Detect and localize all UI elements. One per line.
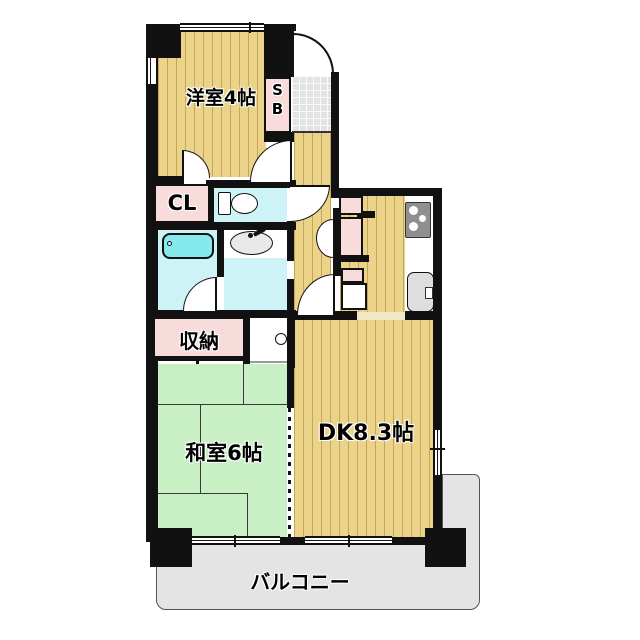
- wall-segment: [146, 24, 158, 542]
- dining-kitchen-label: DK8.3帖: [296, 415, 436, 447]
- kitchen-sink-notch-icon: [425, 287, 433, 299]
- wall-segment: [146, 176, 184, 184]
- stove-burner-icon: [419, 215, 426, 222]
- closet-label: CL: [154, 191, 210, 215]
- wall-pillar: [264, 24, 294, 77]
- kitchen-storage-box: [339, 196, 363, 215]
- window: [180, 23, 264, 32]
- faucet-knob-icon: [248, 233, 253, 238]
- toilet-bowl-icon: [231, 193, 258, 214]
- wall-segment: [331, 72, 339, 198]
- storage-label: 収納: [153, 325, 245, 354]
- window-tick: [234, 535, 236, 547]
- window: [146, 58, 158, 84]
- entrance-tile-floor: [292, 76, 331, 133]
- kitchen-storage-box: [339, 217, 363, 257]
- wall-pillar: [425, 528, 466, 567]
- threshold-strip: [357, 312, 405, 320]
- wall-pillar: [150, 528, 192, 567]
- kitchen-storage-box: [341, 268, 364, 283]
- faucet-knob-icon: [256, 227, 260, 231]
- sliding-partition-dashed: [288, 408, 291, 537]
- floor-plan: 洋室4帖 S B CL 収納 和室6帖 DK8.3帖 バルコニー: [0, 0, 640, 640]
- wall-segment: [217, 230, 224, 277]
- balcony-label: バルコニー: [150, 566, 450, 595]
- wall-pillar: [146, 24, 181, 58]
- window-tick: [249, 22, 251, 33]
- storage-door-line: [153, 358, 245, 361]
- window: [192, 536, 280, 545]
- entrance-step-line: [292, 131, 331, 133]
- wall-segment: [405, 311, 442, 320]
- tatami-line: [158, 493, 247, 494]
- bathtub-drain-icon: [167, 241, 172, 246]
- toilet-tank-icon: [218, 192, 231, 215]
- washroom: [224, 258, 287, 310]
- wall-segment: [331, 188, 440, 196]
- washer-drain-icon: [275, 333, 287, 345]
- stove-burner-icon: [409, 222, 418, 231]
- wall-segment: [433, 188, 442, 546]
- tatami-line: [243, 364, 244, 405]
- wall-segment: [287, 368, 294, 408]
- tatami-line: [158, 404, 287, 405]
- stove-burner-icon: [409, 206, 418, 215]
- shoebox-label-line2: B: [272, 100, 283, 118]
- japanese-room-label: 和室6帖: [160, 437, 288, 467]
- window-tick: [348, 535, 350, 547]
- tatami-line: [247, 493, 248, 537]
- wall-segment: [287, 279, 294, 313]
- entrance-door-arc: [293, 33, 334, 74]
- shoebox-label-line1: S: [272, 81, 283, 99]
- shoebox-label: S B: [264, 81, 291, 119]
- refrigerator-space: [341, 283, 367, 310]
- wall-segment: [146, 222, 296, 230]
- bathtub-icon: [162, 233, 214, 259]
- window-tick: [430, 448, 445, 450]
- nook-sliding-door-line: [250, 361, 287, 363]
